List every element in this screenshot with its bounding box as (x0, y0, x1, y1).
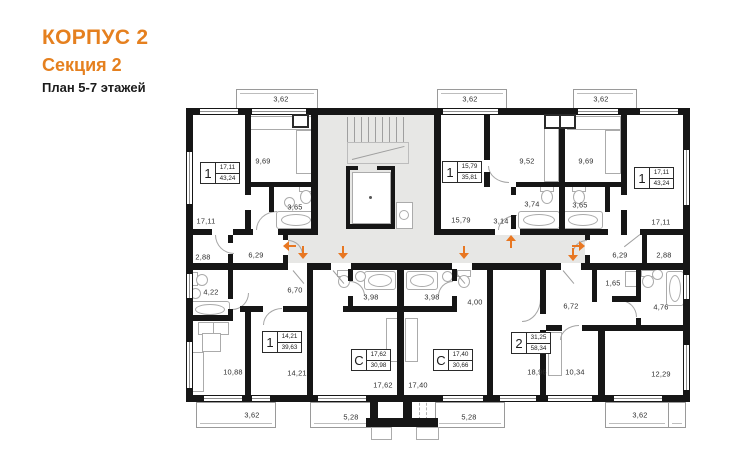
wall (511, 215, 516, 229)
door-leaf (563, 270, 575, 284)
door-arc (620, 300, 637, 317)
window (443, 396, 483, 401)
vent-shaft-icon (559, 114, 576, 129)
window (187, 342, 192, 388)
bathtub-icon (669, 275, 681, 302)
window (578, 109, 618, 114)
apartment-total-area: 58,34 (527, 344, 550, 354)
area-label-g-kitchen: 10,34 (565, 368, 585, 377)
entry-arrow-down (297, 246, 309, 260)
vent-shaft-icon (292, 114, 309, 128)
area-label-f-room: 17,40 (408, 381, 428, 390)
bathtub-icon (368, 274, 392, 287)
area-label-d-bath: 4,22 (203, 288, 218, 297)
bathtub-icon (568, 214, 598, 226)
apartment-room-area: 17,62 (367, 350, 390, 361)
wall (311, 108, 318, 235)
area-label-d-room: 14,21 (287, 369, 307, 378)
wall (283, 306, 307, 312)
entry-arrow-left (283, 240, 295, 254)
apartment-total-area: 30,66 (449, 361, 472, 371)
area-label-b-room: 15,79 (451, 216, 471, 225)
wall (487, 269, 493, 395)
apartment-tag-f: С17,4030,66 (433, 349, 473, 371)
area-label-e-balcony: 5,28 (343, 413, 358, 422)
kitchen-counter (405, 318, 418, 362)
area-label-a-ward: 2,88 (195, 253, 210, 262)
wall (621, 210, 627, 235)
area-label-d-kitchen: 10,88 (223, 368, 243, 377)
wall (348, 296, 353, 306)
wall (346, 166, 350, 228)
entry-arrow-down (458, 246, 470, 260)
apartment-room-area: 14,21 (278, 332, 301, 343)
wall (404, 306, 457, 312)
door-arc (263, 308, 282, 325)
apartment-tag-d: 114,2139,63 (262, 331, 302, 353)
area-label-d-balcony: 3,62 (244, 411, 259, 420)
toilet-icon (196, 274, 208, 286)
window (684, 345, 689, 390)
window (252, 396, 270, 401)
wall (307, 269, 313, 395)
wall (520, 229, 565, 235)
window (318, 396, 366, 401)
area-label-f-bath: 3,98 (424, 293, 439, 302)
bathtub-icon (523, 214, 555, 226)
wall (636, 269, 641, 302)
apartment-tag-c: 117,1143,24 (634, 167, 674, 189)
area-label-e-bath: 3,98 (363, 293, 378, 302)
area-label-b-bath: 3,74 (524, 200, 539, 209)
balcony-outline (196, 402, 276, 428)
wall (546, 325, 562, 331)
wall (228, 269, 233, 299)
apartment-room-area: 17,11 (216, 163, 239, 174)
bathtub-icon (195, 304, 225, 315)
apartment-type: 1 (263, 332, 277, 352)
area-label-c-room: 17,11 (652, 218, 671, 227)
elevator-marker (369, 196, 372, 199)
window (684, 275, 689, 299)
wall (228, 254, 233, 263)
bathtub-icon (410, 274, 434, 287)
area-label-a-bath: 3,65 (287, 203, 302, 212)
apartment-type: С (434, 350, 448, 370)
window (548, 396, 592, 401)
wall (585, 235, 590, 240)
apartment-tag-g: 231,2558,34 (511, 332, 551, 354)
wall (186, 229, 212, 235)
balcony-outline (668, 402, 686, 428)
wall (511, 187, 516, 195)
wall (240, 306, 263, 312)
apartment-room-area: 15,79 (458, 162, 481, 173)
kitchen-counter (202, 333, 221, 352)
wall (516, 182, 559, 187)
door-arc (438, 281, 453, 296)
wall (605, 187, 610, 212)
entry-arrow-up (505, 235, 517, 249)
door-arc (488, 166, 509, 183)
apartment-tag-e: С17,6230,98 (351, 349, 391, 371)
wall (642, 235, 647, 263)
area-label-c-hall: 6,29 (612, 251, 627, 260)
wall (598, 330, 605, 395)
wall (452, 296, 457, 306)
window (614, 396, 662, 401)
wall (621, 115, 627, 195)
window (500, 396, 536, 401)
area-label-a-kitchen: 9,69 (255, 157, 270, 166)
entry-arrow-down (567, 248, 579, 262)
area-label-b-hall: 3,14 (493, 217, 508, 226)
window (187, 152, 192, 204)
wall (484, 115, 490, 160)
apartment-total-area: 30,98 (367, 361, 390, 371)
wall (346, 224, 395, 229)
wall (186, 263, 288, 270)
floors-subtitle: План 5-7 этажей (42, 80, 148, 95)
apartment-type: 1 (635, 168, 649, 188)
wall (283, 255, 288, 263)
apartment-tag-b: 115,7935,81 (442, 161, 482, 183)
area-label-bal-a-top: 3,62 (273, 95, 288, 104)
entrance-steps (416, 427, 439, 440)
area-label-e-room: 17,62 (373, 381, 393, 390)
wall (434, 108, 441, 235)
plan-title-block: КОРПУС 2 Секция 2 План 5-7 этажей (42, 26, 148, 95)
bathtub-icon (281, 214, 311, 226)
wall (472, 263, 561, 270)
door-arc (522, 299, 541, 322)
wall (346, 166, 358, 170)
kitchen-counter (544, 128, 559, 182)
toilet-icon (541, 190, 553, 204)
apartment-total-area: 43,24 (216, 174, 239, 184)
door-leaf (293, 270, 305, 284)
area-label-a-room: 17,11 (197, 217, 216, 226)
area-label-g-wc: 1,65 (605, 279, 620, 288)
staircase (347, 117, 407, 143)
wall (640, 229, 690, 235)
apartment-room-area: 17,40 (449, 350, 472, 361)
area-label-c-kitchen: 9,69 (578, 157, 593, 166)
sink-icon (652, 269, 663, 280)
apartment-total-area: 35,81 (458, 173, 481, 183)
floor-plan-page: КОРПУС 2 Секция 2 План 5-7 этажей 3,623,… (0, 0, 740, 472)
sink-icon (355, 271, 366, 282)
area-label-g-hall: 6,72 (563, 302, 578, 311)
area-label-f-balcony: 5,28 (461, 413, 476, 422)
wall (377, 166, 395, 170)
window (200, 109, 238, 114)
wall (366, 418, 438, 427)
area-label-g-balcony: 3,62 (632, 411, 647, 420)
wall (278, 229, 318, 235)
building-title: КОРПУС 2 (42, 26, 148, 50)
apartment-type: 1 (443, 162, 457, 182)
apartment-room-area: 17,11 (650, 168, 673, 179)
window (684, 150, 689, 205)
apartment-room-area: 31,25 (527, 333, 550, 344)
wall (269, 187, 274, 212)
area-label-g-room1: 18,96 (527, 368, 547, 377)
apartment-type: 2 (512, 333, 526, 353)
area-label-bal-b-top: 3,62 (462, 95, 477, 104)
window (204, 396, 242, 401)
area-label-c-ward: 2,88 (656, 251, 671, 260)
wall (228, 235, 233, 243)
apartment-type: 1 (201, 163, 215, 183)
wall (565, 229, 608, 235)
area-label-a-hall: 6,29 (248, 251, 263, 260)
wall (348, 269, 353, 281)
apartment-total-area: 43,24 (650, 179, 673, 189)
wall (636, 318, 641, 325)
section-title: Секция 2 (42, 55, 148, 76)
kitchen-counter (296, 130, 312, 174)
wall (186, 315, 233, 321)
wall (245, 306, 251, 395)
wall (592, 269, 597, 299)
wall (440, 229, 495, 235)
area-label-f-hall: 4,00 (467, 298, 482, 307)
wall (343, 306, 397, 312)
apartment-type: С (352, 350, 366, 370)
wall (585, 255, 590, 263)
wall (565, 182, 621, 187)
area-label-bal-c-top: 3,62 (593, 95, 608, 104)
refuse-chute (399, 210, 409, 220)
window (443, 109, 498, 114)
apartment-tag-a: 117,1143,24 (200, 162, 240, 184)
door-arc (560, 325, 579, 340)
apartment-total-area: 39,63 (278, 343, 301, 353)
wall (251, 182, 311, 187)
entry-arrow-down (337, 246, 349, 260)
kitchen-counter (605, 130, 621, 174)
wall (484, 172, 490, 187)
area-label-d-hall: 6,70 (287, 286, 302, 295)
area-label-c-bath: 3,65 (572, 201, 587, 210)
door-leaf (624, 234, 640, 247)
wall (233, 229, 253, 235)
wall (592, 296, 597, 302)
wall (391, 166, 395, 228)
window (187, 274, 192, 298)
area-label-g-room2: 12,29 (651, 370, 671, 379)
door-arc (256, 211, 277, 230)
entrance-steps (371, 427, 392, 440)
area-label-g-bath: 4,76 (653, 303, 668, 312)
window (640, 109, 678, 114)
wall (397, 269, 404, 395)
wall (452, 269, 457, 281)
wall (540, 269, 546, 314)
area-label-b-kitchen: 9,52 (519, 157, 534, 166)
